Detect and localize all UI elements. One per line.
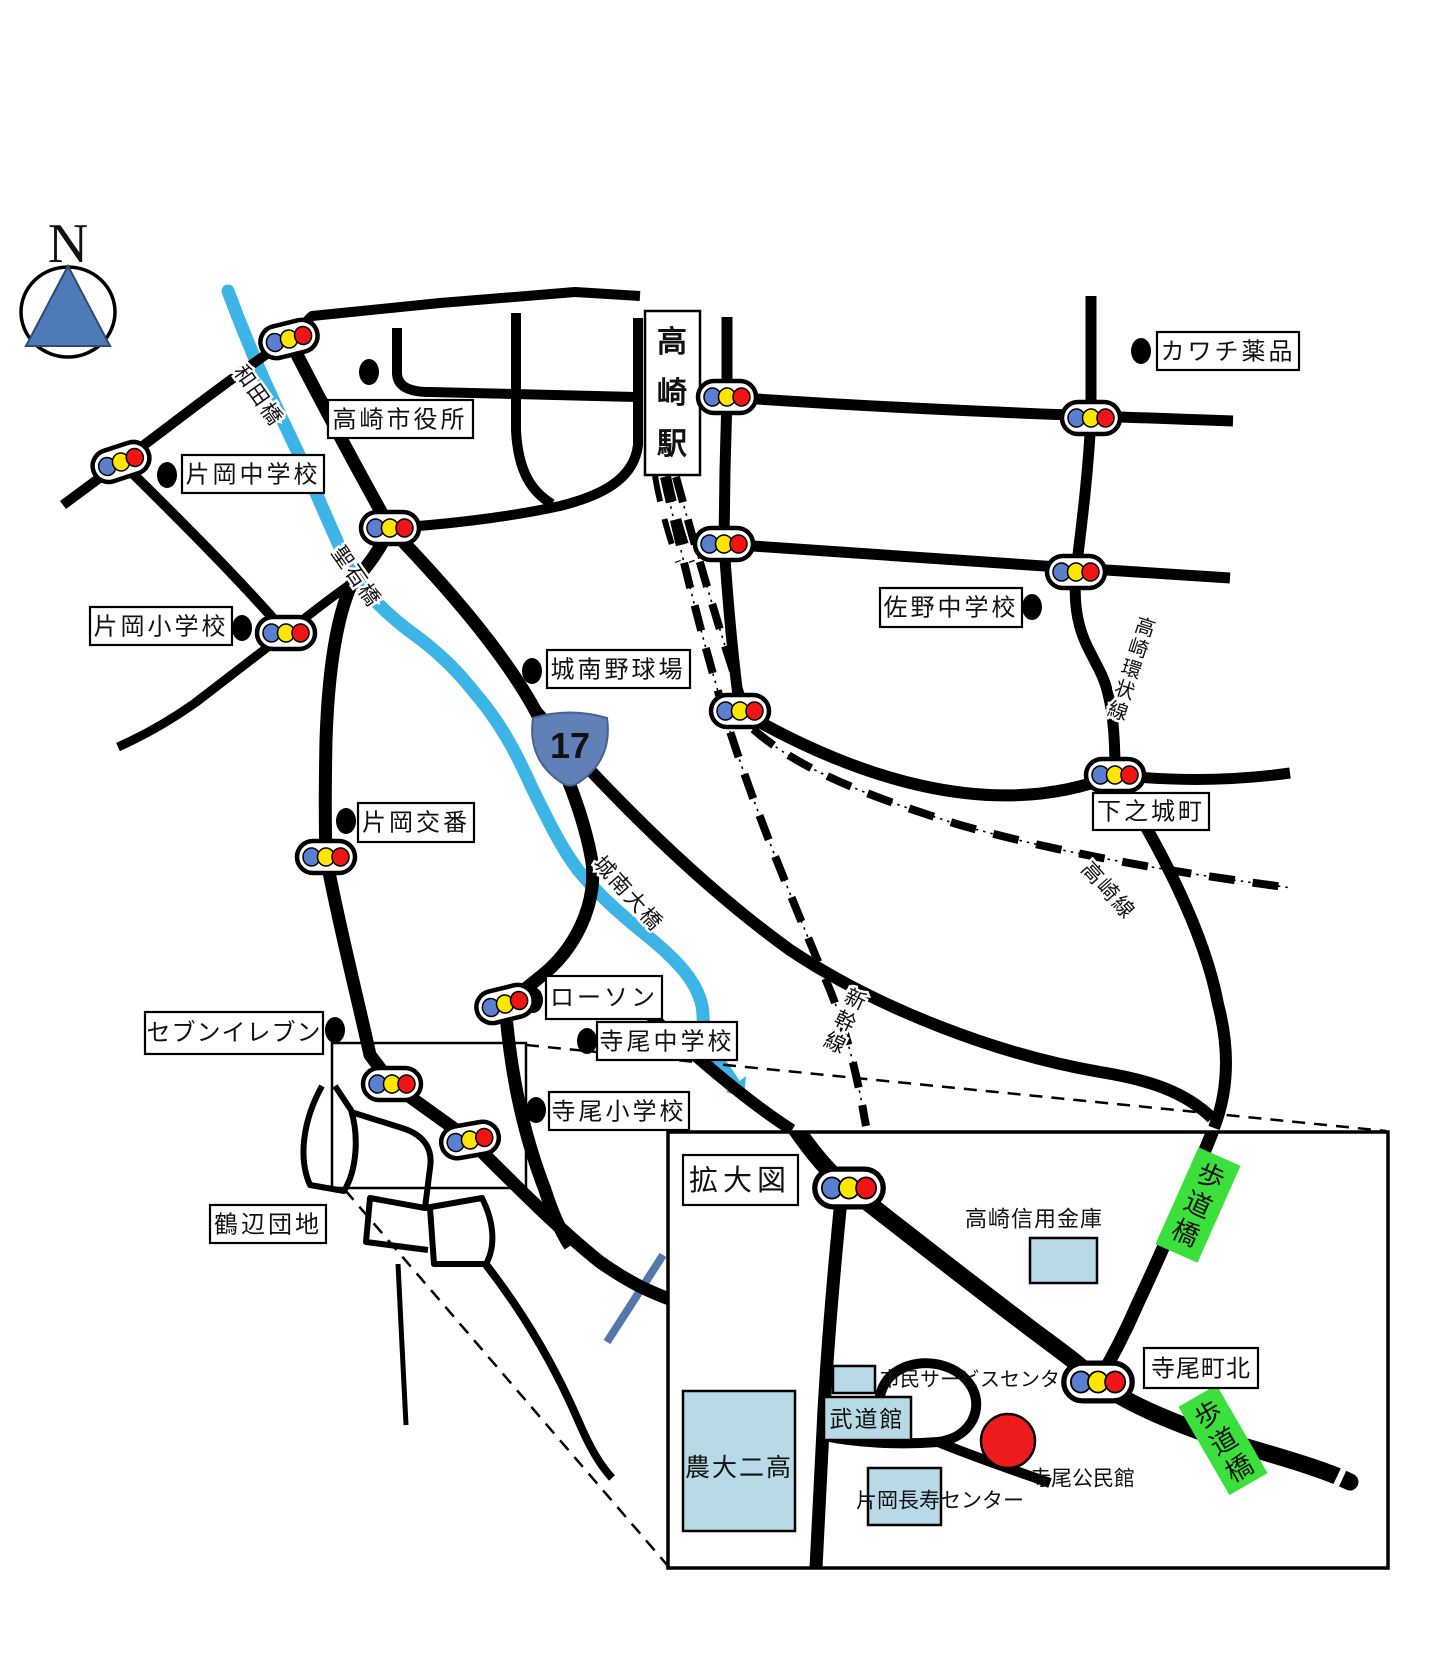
- label-kataoka-junior-high: 片岡中学校: [182, 455, 324, 493]
- place-dot: [1131, 338, 1151, 364]
- danchi-street: [398, 1264, 406, 1425]
- svg-text:佐野中学校: 佐野中学校: [884, 595, 1019, 622]
- road-station-west: [516, 313, 552, 504]
- label-service-center: 市民サービスセンター: [880, 1368, 1080, 1391]
- svg-text:拡大図: 拡大図: [689, 1164, 791, 1197]
- svg-text:カワチ薬品: カワチ薬品: [1161, 339, 1296, 366]
- svg-text:鶴辺団地: 鶴辺団地: [214, 1212, 322, 1239]
- label-choju-center: 片岡長寿センター: [856, 1490, 1024, 1513]
- label-takasaki-line: 高崎線: [1076, 858, 1139, 925]
- road-east-1: [727, 397, 1233, 421]
- danchi-street: [351, 1112, 431, 1250]
- traffic-light: [698, 381, 756, 413]
- service-center-building: [833, 1366, 875, 1393]
- danchi-street: [425, 1198, 492, 1264]
- label-seven-eleven: セブンイレブン: [145, 1012, 323, 1054]
- inset-map: 歩道橋 歩道橋 高崎信用金庫 市民サービスセンター 武道館 農大二高 片岡長寿セ…: [668, 1120, 1388, 1568]
- place-dot: [232, 615, 252, 641]
- traffic-light: [815, 1169, 883, 1207]
- traffic-light: [297, 841, 355, 873]
- road-shimonojo-west: [740, 711, 1115, 795]
- label-kawachi-yakuhin: カワチ薬品: [1157, 332, 1299, 370]
- svg-text:片岡中学校: 片岡中学校: [186, 462, 321, 489]
- inset-leader-line: [345, 1190, 668, 1566]
- label-lawson: ローソン: [546, 976, 662, 1019]
- svg-text:新幹線: 新幹線: [820, 985, 871, 1059]
- place-dot: [359, 359, 379, 385]
- traffic-light: [1047, 556, 1105, 588]
- label-shinkin-bank: 高崎信用金庫: [965, 1207, 1103, 1232]
- svg-text:寺尾中学校: 寺尾中学校: [600, 1029, 735, 1056]
- place-dot: [1022, 594, 1042, 620]
- traffic-light: [361, 512, 419, 544]
- place-dot: [336, 808, 356, 834]
- road-southwest-stub: [118, 633, 286, 747]
- label-kanjo-line: 高崎環状線: [1105, 614, 1160, 726]
- svg-text:片岡小学校: 片岡小学校: [94, 614, 229, 641]
- road-koban-south: [326, 857, 392, 1084]
- label-shinkansen: 新幹線: [820, 985, 871, 1059]
- svg-text:寺尾小学校: 寺尾小学校: [552, 1099, 687, 1126]
- place-dot: [157, 462, 177, 488]
- compass: N: [21, 213, 115, 357]
- label-kataoka-koban: 片岡交番: [358, 803, 474, 842]
- label-tsurube-danchi: 鶴辺団地: [210, 1205, 326, 1243]
- svg-text:高崎駅: 高崎駅: [657, 326, 687, 461]
- inset-title-box: 拡大図: [683, 1155, 798, 1205]
- svg-text:高崎市役所: 高崎市役所: [333, 407, 468, 434]
- road-kanjo-line: [1075, 572, 1115, 775]
- traffic-light: [695, 528, 753, 560]
- traffic-light: [257, 316, 321, 361]
- road-east-2: [724, 544, 1230, 578]
- label-nodai-niko: 農大二高: [685, 1454, 793, 1482]
- traffic-light: [473, 981, 537, 1026]
- label-sano-junior-high: 佐野中学校: [880, 588, 1022, 627]
- destination-marker: [981, 1414, 1035, 1468]
- road-top: [289, 292, 640, 339]
- traffic-light: [711, 695, 769, 727]
- svg-text:寺尾町北: 寺尾町北: [1151, 1356, 1251, 1383]
- label-takasaki-shiyakusho: 高崎市役所: [328, 400, 473, 438]
- label-kataoka-elementary: 片岡小学校: [90, 607, 232, 645]
- traffic-light: [1086, 759, 1144, 791]
- route-map: 和田橋 聖石橋 城南大橋 高崎線 高崎環状線 新幹線 カワチ薬品 高崎市役所 片…: [0, 0, 1449, 1669]
- label-terao-junior-high: 寺尾中学校: [597, 1022, 737, 1060]
- svg-text:城南野球場: 城南野球場: [551, 657, 686, 684]
- traffic-light: [1064, 1363, 1132, 1401]
- label-jonan-stadium: 城南野球場: [547, 650, 690, 688]
- place-dot: [325, 1017, 345, 1043]
- svg-text:17: 17: [550, 725, 590, 766]
- takasaki-station-box: 高崎駅: [645, 311, 700, 475]
- svg-text:高崎線: 高崎線: [1076, 858, 1139, 925]
- label-shimonojo-machi: 下之城町: [1093, 793, 1209, 830]
- traffic-light: [1062, 402, 1120, 434]
- label-terao-elementary: 寺尾小学校: [549, 1092, 689, 1130]
- svg-text:高崎環状線: 高崎環状線: [1105, 614, 1160, 726]
- traffic-light: [363, 1068, 421, 1100]
- place-dot: [522, 658, 542, 684]
- svg-text:ローソン: ローソン: [550, 985, 658, 1012]
- place-dot: [577, 1028, 597, 1054]
- danchi-street: [304, 1086, 356, 1191]
- label-teraomachi-kita: 寺尾町北: [1144, 1348, 1258, 1388]
- map-canvas: 和田橋 聖石橋 城南大橋 高崎線 高崎環状線 新幹線 カワチ薬品 高崎市役所 片…: [0, 0, 1449, 1669]
- shinkin-bank-building: [1030, 1238, 1097, 1283]
- svg-text:下之城町: 下之城町: [1097, 799, 1205, 826]
- place-dot: [526, 1097, 546, 1123]
- road-danchi-south: [484, 1262, 612, 1478]
- svg-text:片岡交番: 片岡交番: [362, 810, 470, 837]
- traffic-light: [257, 617, 315, 649]
- label-terao-kominkan: 寺尾公民館: [1030, 1468, 1135, 1491]
- label-budokan: 武道館: [830, 1406, 905, 1432]
- svg-text:セブンイレブン: セブンイレブン: [147, 1020, 322, 1047]
